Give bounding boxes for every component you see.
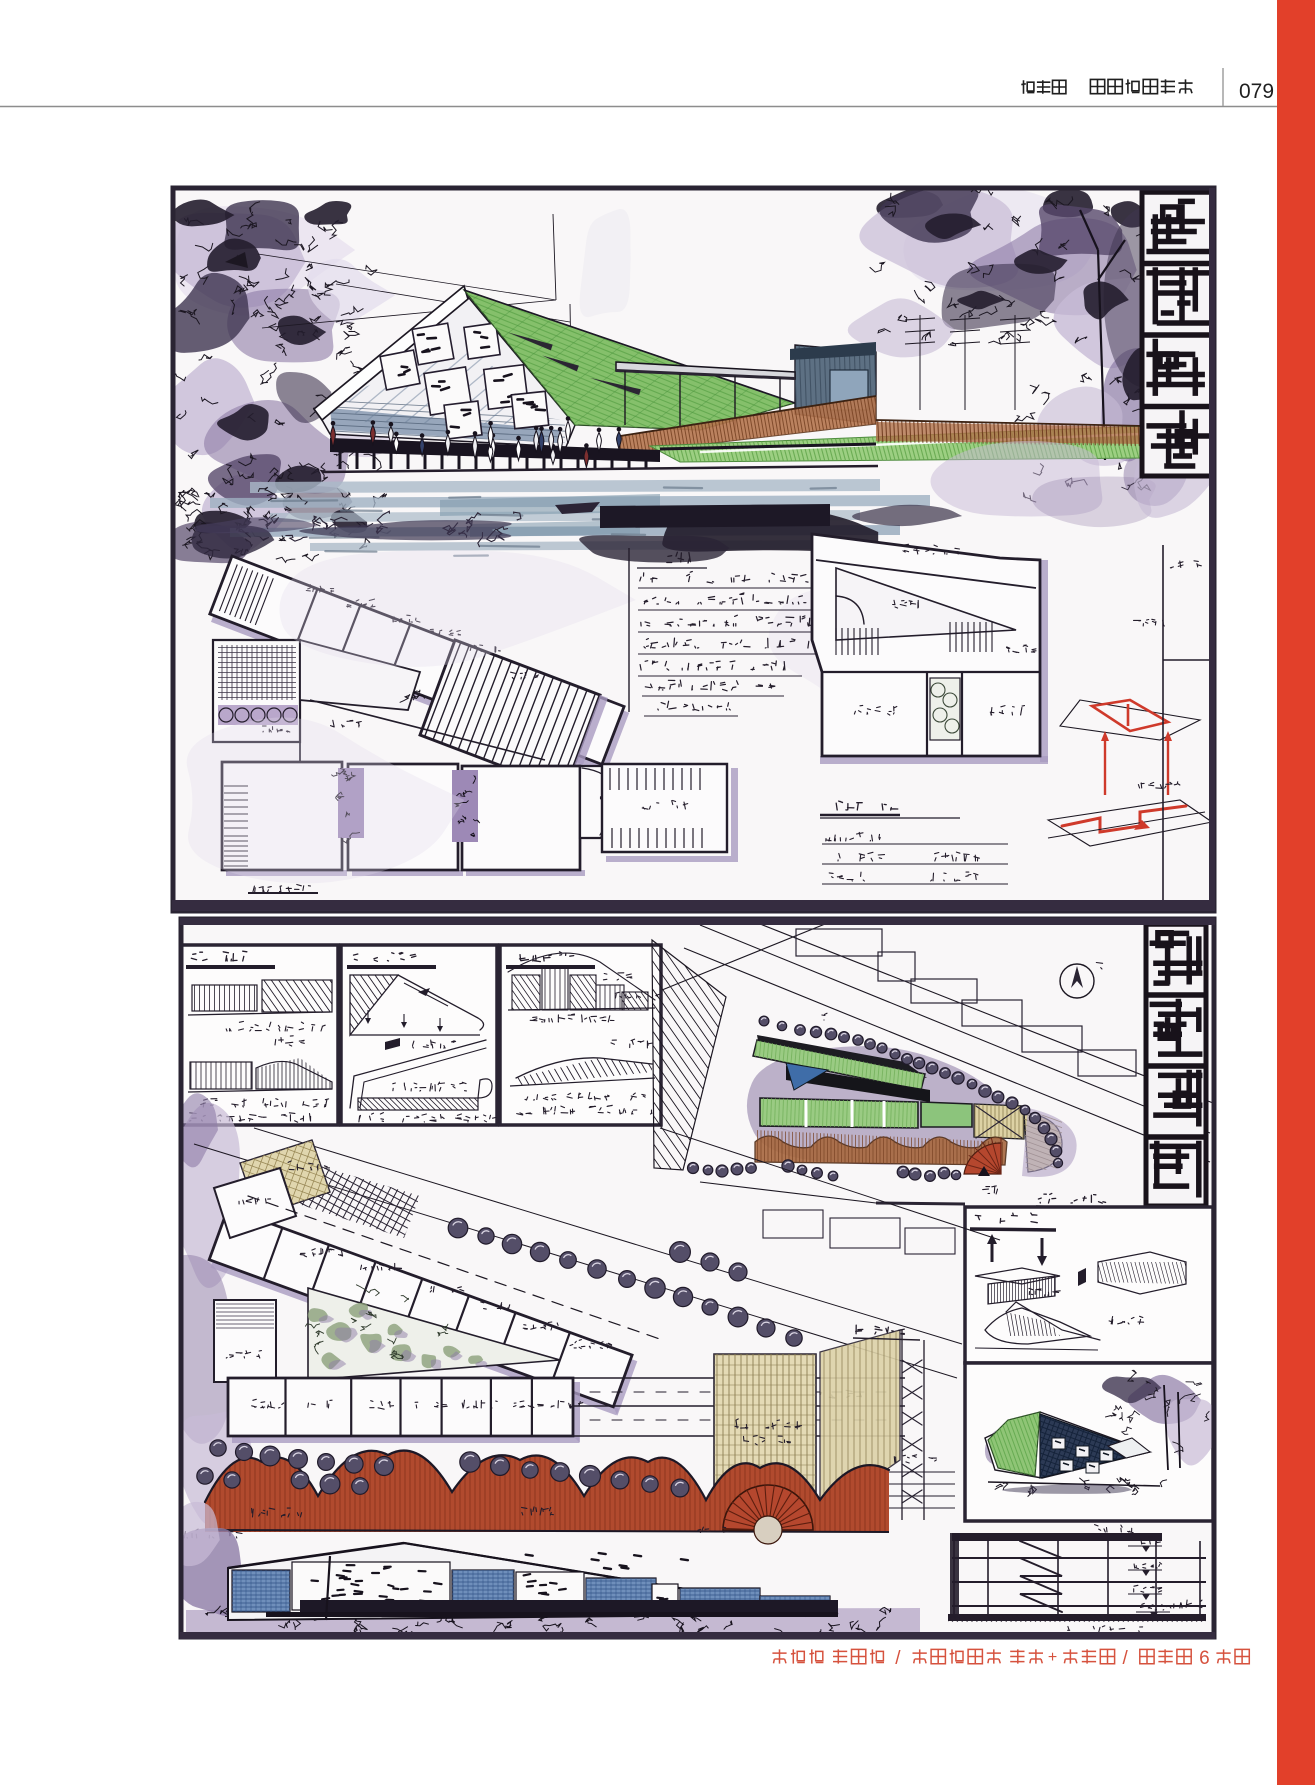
- svg-text:6: 6: [1199, 1648, 1210, 1669]
- svg-text:/: /: [895, 1648, 901, 1669]
- svg-text:079: 079: [1239, 80, 1274, 103]
- svg-text:+: +: [1048, 1649, 1057, 1666]
- svg-text:/: /: [1123, 1648, 1129, 1669]
